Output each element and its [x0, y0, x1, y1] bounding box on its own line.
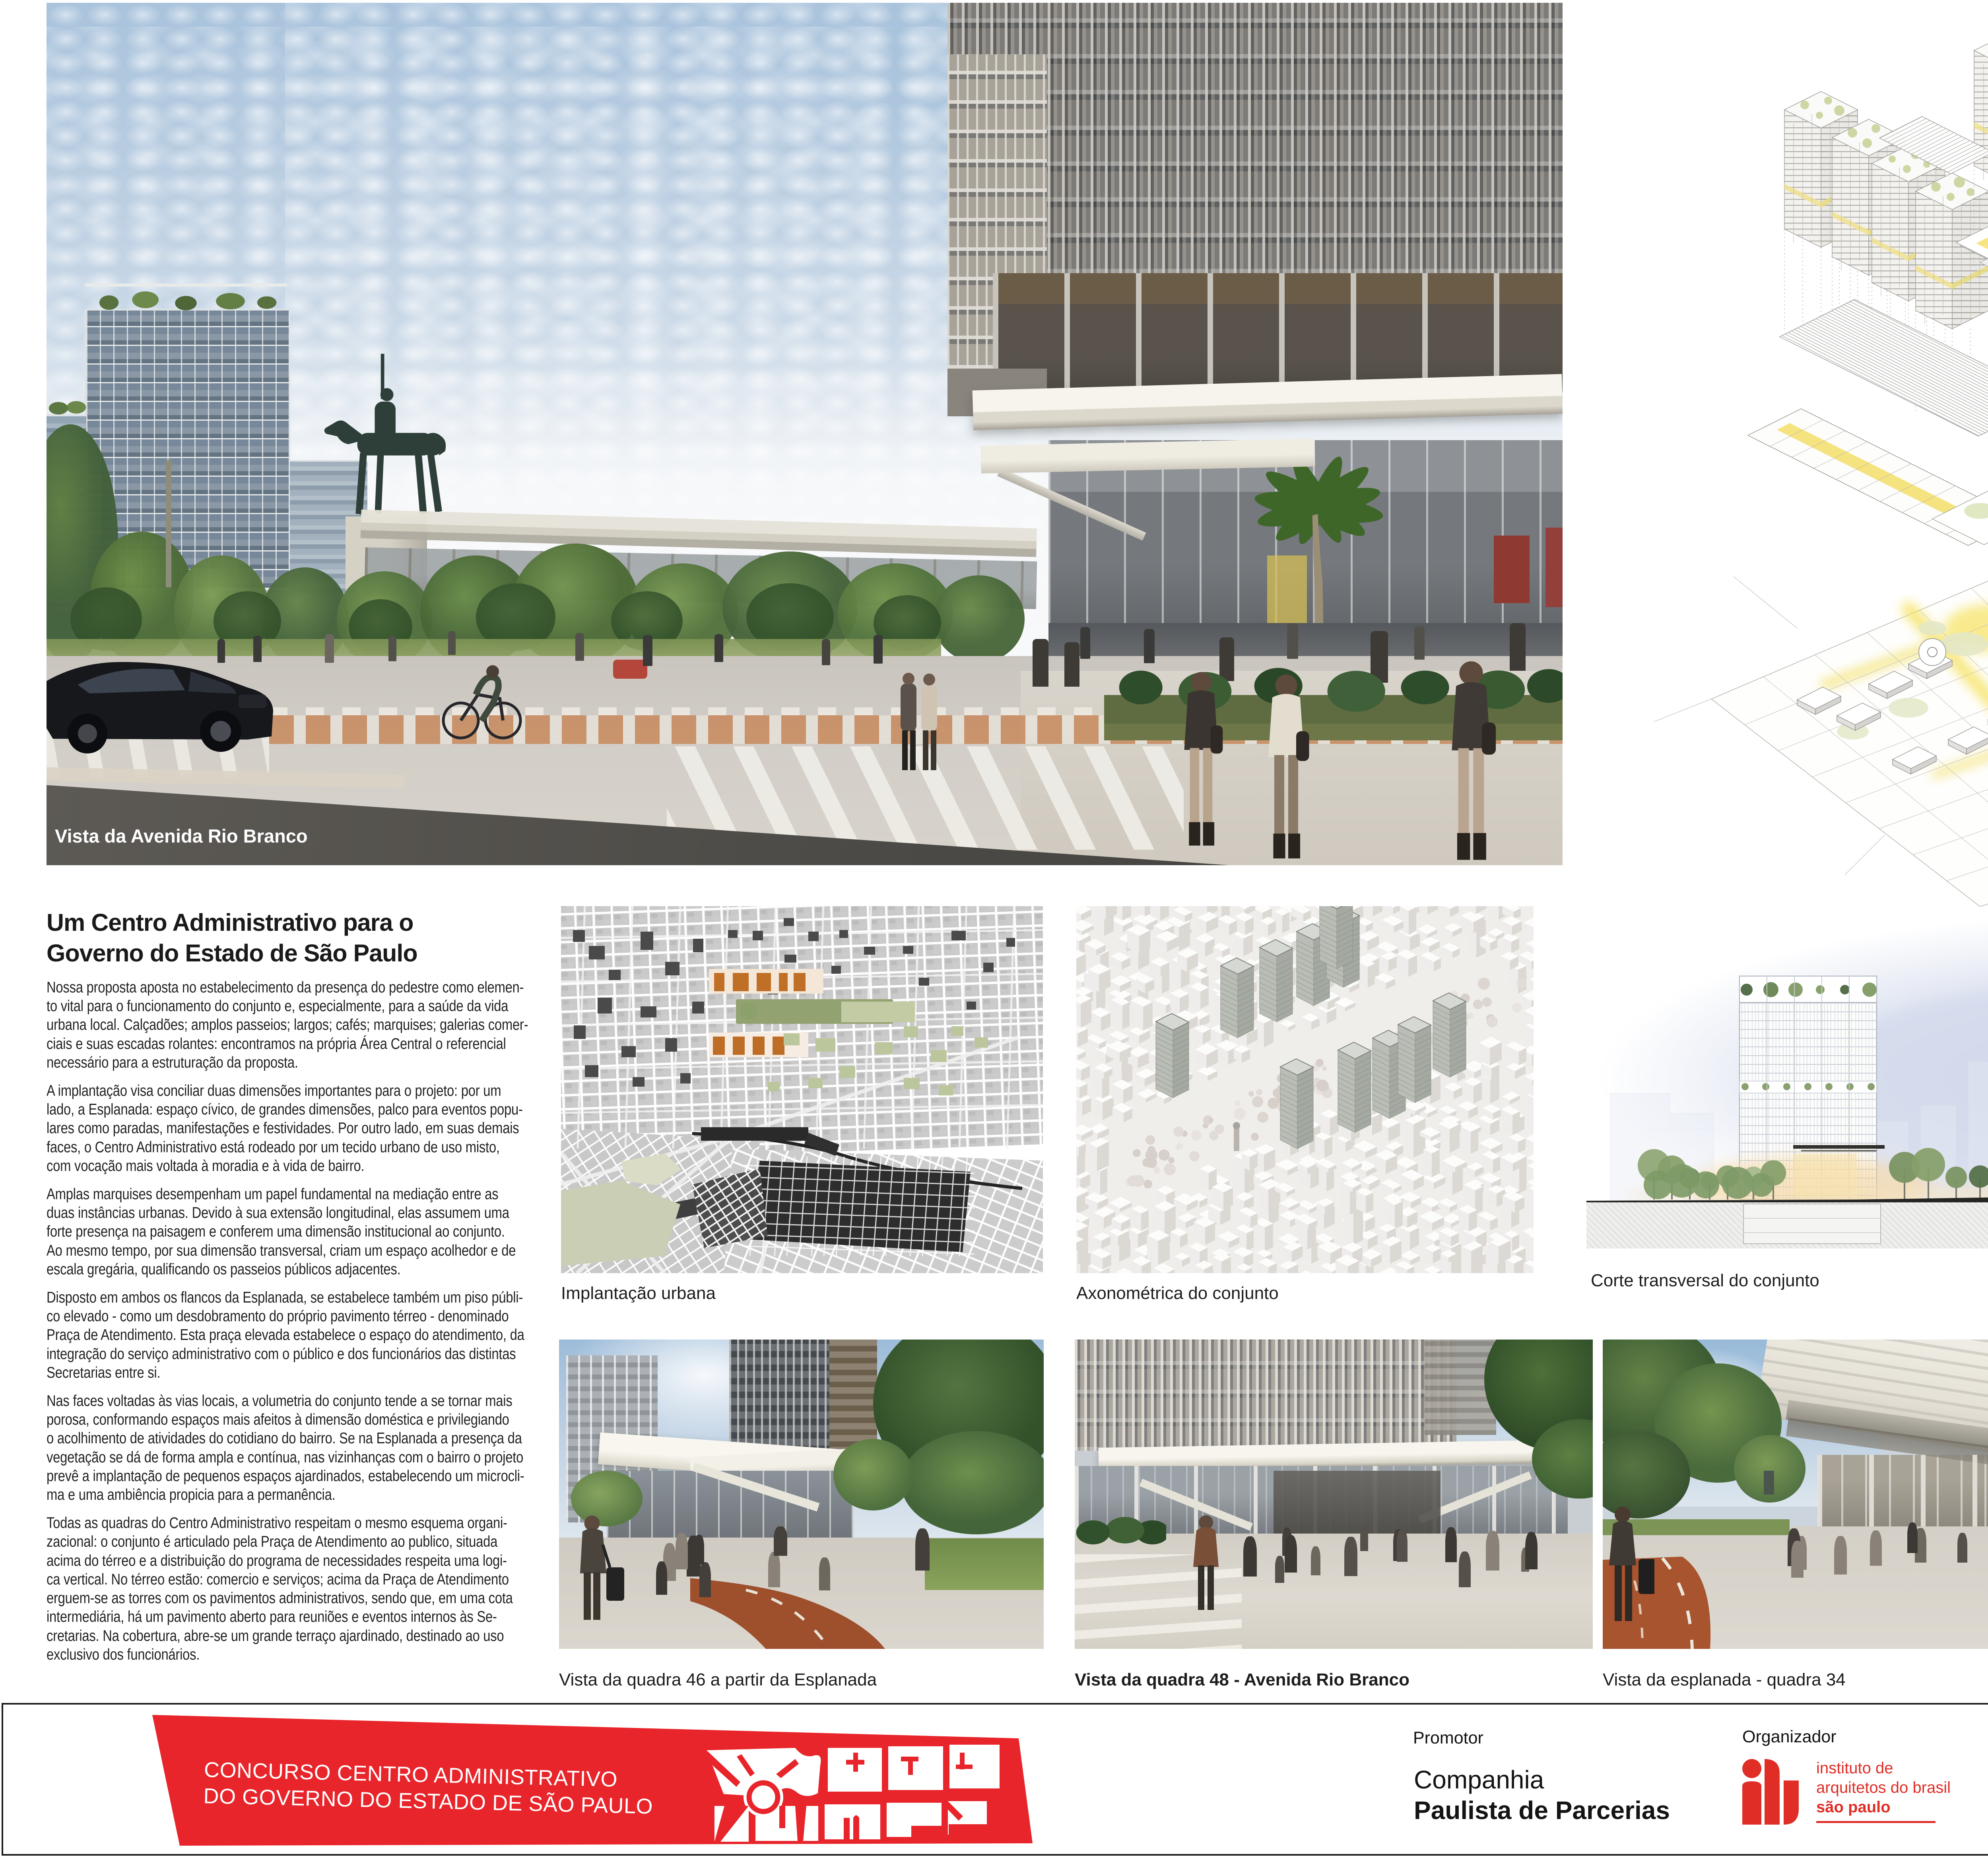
svg-text:arquitetos do brasil: arquitetos do brasil	[1816, 1779, 1951, 1796]
svg-text:instituto de: instituto de	[1816, 1759, 1893, 1777]
svg-text:são paulo: são paulo	[1816, 1798, 1891, 1816]
